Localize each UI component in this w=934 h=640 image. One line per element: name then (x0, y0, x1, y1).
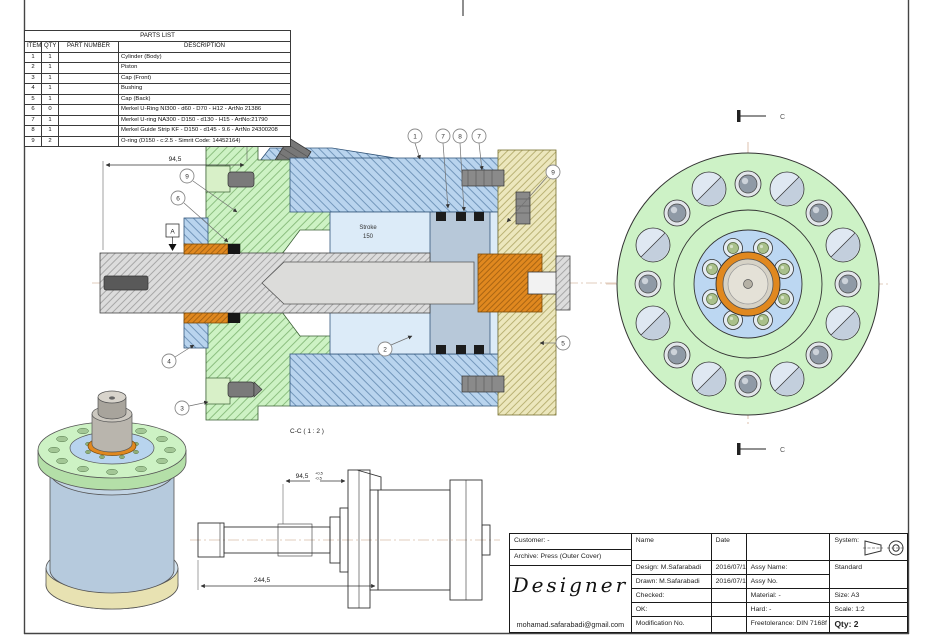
assy-header-spacer (747, 534, 830, 561)
parts-row: 7 1 Merkel U-ring NA300 - D150 - d130 - … (25, 115, 291, 126)
cell-part-number (59, 136, 119, 147)
cell-qty: 1 (42, 52, 59, 63)
designer-block: Designer mohamad.safarabadi@gmail.com (510, 566, 631, 632)
section-cut-marker-top: C (737, 110, 785, 122)
retainer-top (184, 218, 208, 246)
col-part-number: PART NUMBER (59, 42, 119, 53)
svg-text:C: C (780, 447, 785, 454)
scale-field: Scale: 1:2 (830, 603, 907, 617)
date-column: Date 2016/07/16 2016/07/16 (712, 534, 747, 632)
drawn-date: 2016/07/16 (712, 575, 746, 589)
svg-text:244,5: 244,5 (254, 577, 271, 584)
rod-slot (104, 276, 148, 290)
outline-view: 94,5 +0,5 -0,5 244,5 (190, 470, 500, 608)
cell-qty: 0 (42, 105, 59, 116)
parts-row: 8 1 Merkel Guide Strip KF - D150 - d145 … (25, 126, 291, 137)
cell-part-number (59, 52, 119, 63)
svg-text:7: 7 (441, 134, 445, 141)
svg-text:4: 4 (167, 359, 171, 366)
design-date: 2016/07/16 (712, 561, 746, 575)
cell-description: Cap (Back) (119, 94, 291, 105)
cell-item: 9 (25, 136, 42, 147)
cell-item: 5 (25, 94, 42, 105)
svg-text:150: 150 (363, 234, 374, 240)
svg-text:-0,5: -0,5 (315, 476, 323, 481)
svg-text:Stroke: Stroke (359, 225, 377, 231)
cell-part-number (59, 84, 119, 95)
tie-bolt-bottom (462, 376, 504, 392)
designer-email: mohamad.safarabadi@gmail.com (510, 620, 631, 629)
name-column: Name Design: M.Safarabadi Drawn: M.Safar… (632, 534, 712, 632)
system-column: System: Standard Size: A3 Scale: 1:2 Qty… (830, 534, 907, 632)
customer-field: Customer: - (510, 534, 631, 550)
system-header: System: (830, 534, 907, 561)
cell-qty: 1 (42, 84, 59, 95)
section-cut-marker-bottom: C (737, 443, 785, 455)
svg-text:9: 9 (551, 170, 555, 177)
archive-field: Archive: Press (Outer Cover) (510, 550, 631, 566)
svg-text:7: 7 (477, 134, 481, 141)
material-field: Material: - (747, 589, 830, 603)
cell-qty: 1 (42, 94, 59, 105)
cell-qty: 1 (42, 73, 59, 84)
end-view: C C (606, 110, 890, 455)
cell-item: 4 (25, 84, 42, 95)
cell-item: 1 (25, 52, 42, 63)
svg-text:94,5: 94,5 (296, 473, 309, 480)
balloon-2: 2 (378, 342, 392, 356)
ok-field: OK: (632, 603, 711, 617)
parts-list-header-row: ITEM QTY PART NUMBER DESCRIPTION (25, 42, 291, 53)
drawing-sheet: 94,5 Stroke 150 A 9 (0, 0, 934, 640)
designer-logo: Designer (510, 573, 631, 597)
parts-row: 1 1 Cylinder (Body) (25, 52, 291, 63)
dimension-rod-extension: 94,5 +0,5 -0,5 (283, 471, 345, 525)
col-description: DESCRIPTION (119, 42, 291, 53)
projection-symbol-icon (863, 539, 907, 557)
dim-94-5-text: 94,5 (169, 156, 182, 163)
cell-description: Bushing (119, 84, 291, 95)
system-label: System: (834, 537, 859, 544)
svg-text:6: 6 (176, 196, 180, 203)
balloon-8: 8 (453, 129, 467, 143)
dimension-overall: 244,5 (198, 560, 375, 590)
piston-rod (100, 253, 474, 313)
parts-list-title-row: PARTS LIST (25, 31, 291, 42)
modification-date (712, 617, 746, 631)
balloon-1: 1 (408, 129, 422, 143)
title-block-left: Customer: - Archive: Press (Outer Cover)… (510, 534, 632, 632)
svg-text:3: 3 (180, 406, 184, 413)
center-hole (744, 280, 753, 289)
checked-field: Checked: (632, 589, 711, 603)
svg-text:8: 8 (458, 134, 462, 141)
balloon-6: 6 (171, 191, 185, 205)
balloon-4: 4 (162, 354, 176, 368)
col-qty: QTY (42, 42, 59, 53)
cell-qty: 1 (42, 126, 59, 137)
datum-a: A (166, 224, 179, 251)
assy-no-field: Assy No. (747, 575, 830, 589)
tie-bolt-top (462, 170, 504, 186)
retainer-bottom (184, 320, 208, 348)
cell-item: 7 (25, 115, 42, 126)
cell-item: 2 (25, 63, 42, 74)
size-field: Size: A3 (830, 589, 907, 603)
name-header: Name (632, 534, 711, 561)
hard-field: Hard: - (747, 603, 830, 617)
balloon-9-left: 9 (180, 169, 194, 183)
svg-text:2: 2 (383, 347, 387, 354)
main-section-view: 94,5 Stroke 150 A 9 (92, 129, 618, 435)
parts-row: 6 0 Merkel U-Ring NI300 - d60 - D70 - H1… (25, 105, 291, 116)
assy-name-field: Assy Name: (747, 561, 830, 575)
section-label: C-C ( 1 : 2 ) (290, 428, 324, 435)
svg-text:5: 5 (561, 341, 565, 348)
balloon-5: 5 (556, 336, 570, 350)
parts-row: 2 1 Piston (25, 63, 291, 74)
cell-description: Piston (119, 63, 291, 74)
drawn-field: Drawn: M.Safarabadi (632, 575, 711, 589)
qty-field: Qty: 2 (830, 617, 907, 631)
title-block: Customer: - Archive: Press (Outer Cover)… (509, 533, 908, 633)
cell-qty: 1 (42, 63, 59, 74)
cell-qty: 1 (42, 115, 59, 126)
ok-date (712, 603, 746, 617)
port-outline (357, 470, 381, 490)
balloon-7b: 7 (472, 129, 486, 143)
cell-description: Merkel U-Ring NI300 - d60 - D70 - H12 - … (119, 105, 291, 116)
design-field: Design: M.Safarabadi (632, 561, 711, 575)
date-header: Date (712, 534, 746, 561)
cell-item: 3 (25, 73, 42, 84)
parts-list-title: PARTS LIST (25, 31, 291, 42)
cell-description: Cylinder (Body) (119, 52, 291, 63)
modification-field: Modification No. (632, 617, 711, 631)
checked-date (712, 589, 746, 603)
parts-row: 4 1 Bushing (25, 84, 291, 95)
cell-part-number (59, 115, 119, 126)
cell-description: Merkel Guide Strip KF - D150 - d145 - 9.… (119, 126, 291, 137)
svg-text:A: A (170, 229, 175, 236)
cell-part-number (59, 63, 119, 74)
cell-qty: 2 (42, 136, 59, 147)
cell-item: 8 (25, 126, 42, 137)
balloon-3: 3 (175, 401, 189, 415)
svg-text:9: 9 (185, 174, 189, 181)
svg-text:1: 1 (413, 134, 417, 141)
parts-row: 9 2 O-ring (D150 - c:2.5 - Simrit Code: … (25, 136, 291, 147)
parts-row: 5 1 Cap (Back) (25, 94, 291, 105)
balloon-7a: 7 (436, 129, 450, 143)
cell-part-number (59, 126, 119, 137)
parts-row: 3 1 Cap (Front) (25, 73, 291, 84)
assy-column: Assy Name: Assy No. Material: - Hard: - … (747, 534, 831, 632)
back-boss (556, 256, 570, 310)
cell-description: O-ring (D150 - c:2.5 - Simrit Code: 1445… (119, 136, 291, 147)
col-item: ITEM (25, 42, 42, 53)
isometric-view (38, 391, 186, 609)
balloon-9-right: 9 (546, 165, 560, 179)
parts-list-table: PARTS LIST ITEM QTY PART NUMBER DESCRIPT… (24, 30, 291, 147)
svg-text:C: C (780, 114, 785, 121)
cell-description: Cap (Front) (119, 73, 291, 84)
cap-back-bolt (516, 192, 530, 224)
cell-item: 6 (25, 105, 42, 116)
standard-field: Standard (830, 561, 907, 589)
cell-part-number (59, 105, 119, 116)
cell-part-number (59, 73, 119, 84)
freetolerance-field: Freetolerance: DIN 7168f (747, 617, 830, 631)
cell-part-number (59, 94, 119, 105)
rod-core (262, 262, 474, 304)
cell-description: Merkel U-ring NA300 - D150 - d130 - H15 … (119, 115, 291, 126)
